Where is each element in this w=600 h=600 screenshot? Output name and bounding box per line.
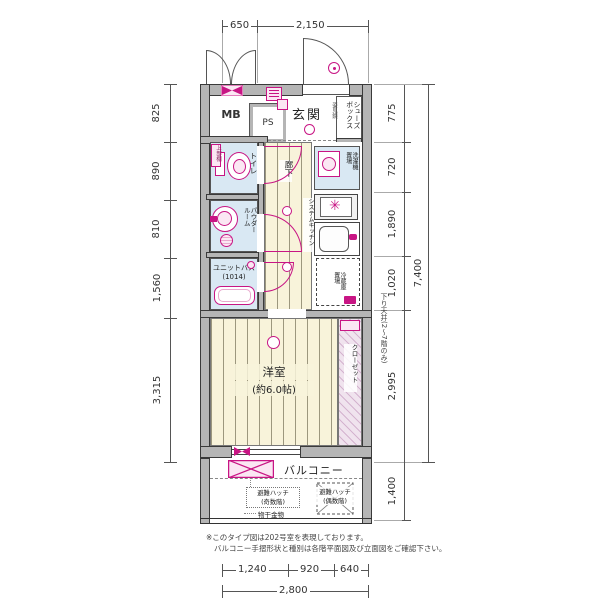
wall xyxy=(200,84,303,96)
dim-right-total: 7,400 xyxy=(413,251,425,295)
toilet-shelf-label: 上部棚 xyxy=(211,144,221,167)
ceiling-light-icon xyxy=(267,336,280,349)
wall xyxy=(300,446,372,458)
dim-right-775: 775 xyxy=(387,96,399,130)
wall xyxy=(200,458,210,524)
dim-top-2150: 2,150 xyxy=(294,20,327,32)
entrance-label: 玄関 xyxy=(292,104,322,123)
ps-label: PS xyxy=(254,118,282,128)
note-line-1: ※このタイプ図は202号室を表現しております。 xyxy=(206,532,368,543)
room-size-label: (約6.0帖) xyxy=(234,381,314,396)
dim-top-650: 650 xyxy=(228,20,251,32)
wall xyxy=(362,458,372,524)
valve-bowtie-icon xyxy=(221,85,243,96)
entrance-step-line xyxy=(268,140,336,141)
wall xyxy=(200,446,232,458)
room-label: 洋室 xyxy=(234,364,314,380)
faucet-icon xyxy=(210,216,217,222)
faucet-icon xyxy=(349,234,357,240)
dim-left-3315: 3,315 xyxy=(152,370,164,410)
window-shutter-icon xyxy=(234,447,250,456)
fridge-label: 冷蔵庫置場 xyxy=(330,272,345,292)
closet-label: クローゼット xyxy=(344,344,357,392)
unit-bath-size: (1014) xyxy=(211,273,257,281)
dim-left-810: 810 xyxy=(151,212,163,246)
entrance-door-arc xyxy=(303,38,349,84)
mb-door-arc xyxy=(206,50,231,84)
dim-balcony-depth: 1,400 xyxy=(387,471,399,511)
wall xyxy=(362,84,372,458)
system-kitchen-label: システムキッチン xyxy=(303,198,313,252)
note-line-2: バルコニー手摺形状と種別は各階平面図及び立面図をご確認下さい。 xyxy=(214,543,446,554)
outlet-icon xyxy=(344,296,356,304)
toilet-label: トイレ xyxy=(246,152,257,182)
dim-left-825: 825 xyxy=(151,96,163,130)
dim-bottom-920: 920 xyxy=(298,564,321,576)
dim-left-890: 890 xyxy=(151,154,163,188)
mirror-label: 姿見鏡 xyxy=(328,102,336,124)
stool-icon xyxy=(220,234,233,247)
mb-door-arc xyxy=(231,50,256,84)
hatch-odd-label-1: 避難ハッチ xyxy=(246,488,300,497)
hatch-even-label-2: (偶数階) xyxy=(316,496,354,505)
balcony-label: バルコニー xyxy=(284,462,344,478)
escape-hatch-odd-icon xyxy=(228,460,274,478)
powder-room-label: パウダールーム xyxy=(238,207,256,235)
floor-plan: 650 2,150 825 890 810 1,560 3,315 775 72… xyxy=(0,0,600,600)
remote-panel-icon xyxy=(277,99,288,110)
shoe-box-label: シューズボックス xyxy=(340,101,360,133)
shower-icon xyxy=(247,261,255,269)
washer-label: 洗濯機置場 xyxy=(342,152,357,172)
burner-icon: ✳ xyxy=(329,198,341,214)
dim-right-2995: 2,995 xyxy=(387,366,399,406)
mb-label: MB xyxy=(214,108,248,121)
dim-right-720: 720 xyxy=(387,150,399,184)
dim-bottom-1240: 1,240 xyxy=(236,564,269,576)
downlight-icon xyxy=(282,206,292,216)
closet-tag xyxy=(340,320,360,331)
hatch-odd-label-2: (奇数階) xyxy=(246,497,300,506)
dim-right-1020: 1,020 xyxy=(387,263,399,303)
dim-bottom-total: 2,800 xyxy=(277,585,310,597)
drain-circle-icon xyxy=(304,124,315,135)
dim-left-1560: 1,560 xyxy=(152,268,164,308)
dim-bottom-640: 640 xyxy=(338,564,361,576)
lowered-ceiling-label: 下り天井(2〜7階のみ) xyxy=(375,293,387,413)
hatch-even-label-1: 避難ハッチ xyxy=(316,487,354,496)
dim-right-1890: 1,890 xyxy=(387,204,399,244)
balcony-line xyxy=(210,478,362,479)
